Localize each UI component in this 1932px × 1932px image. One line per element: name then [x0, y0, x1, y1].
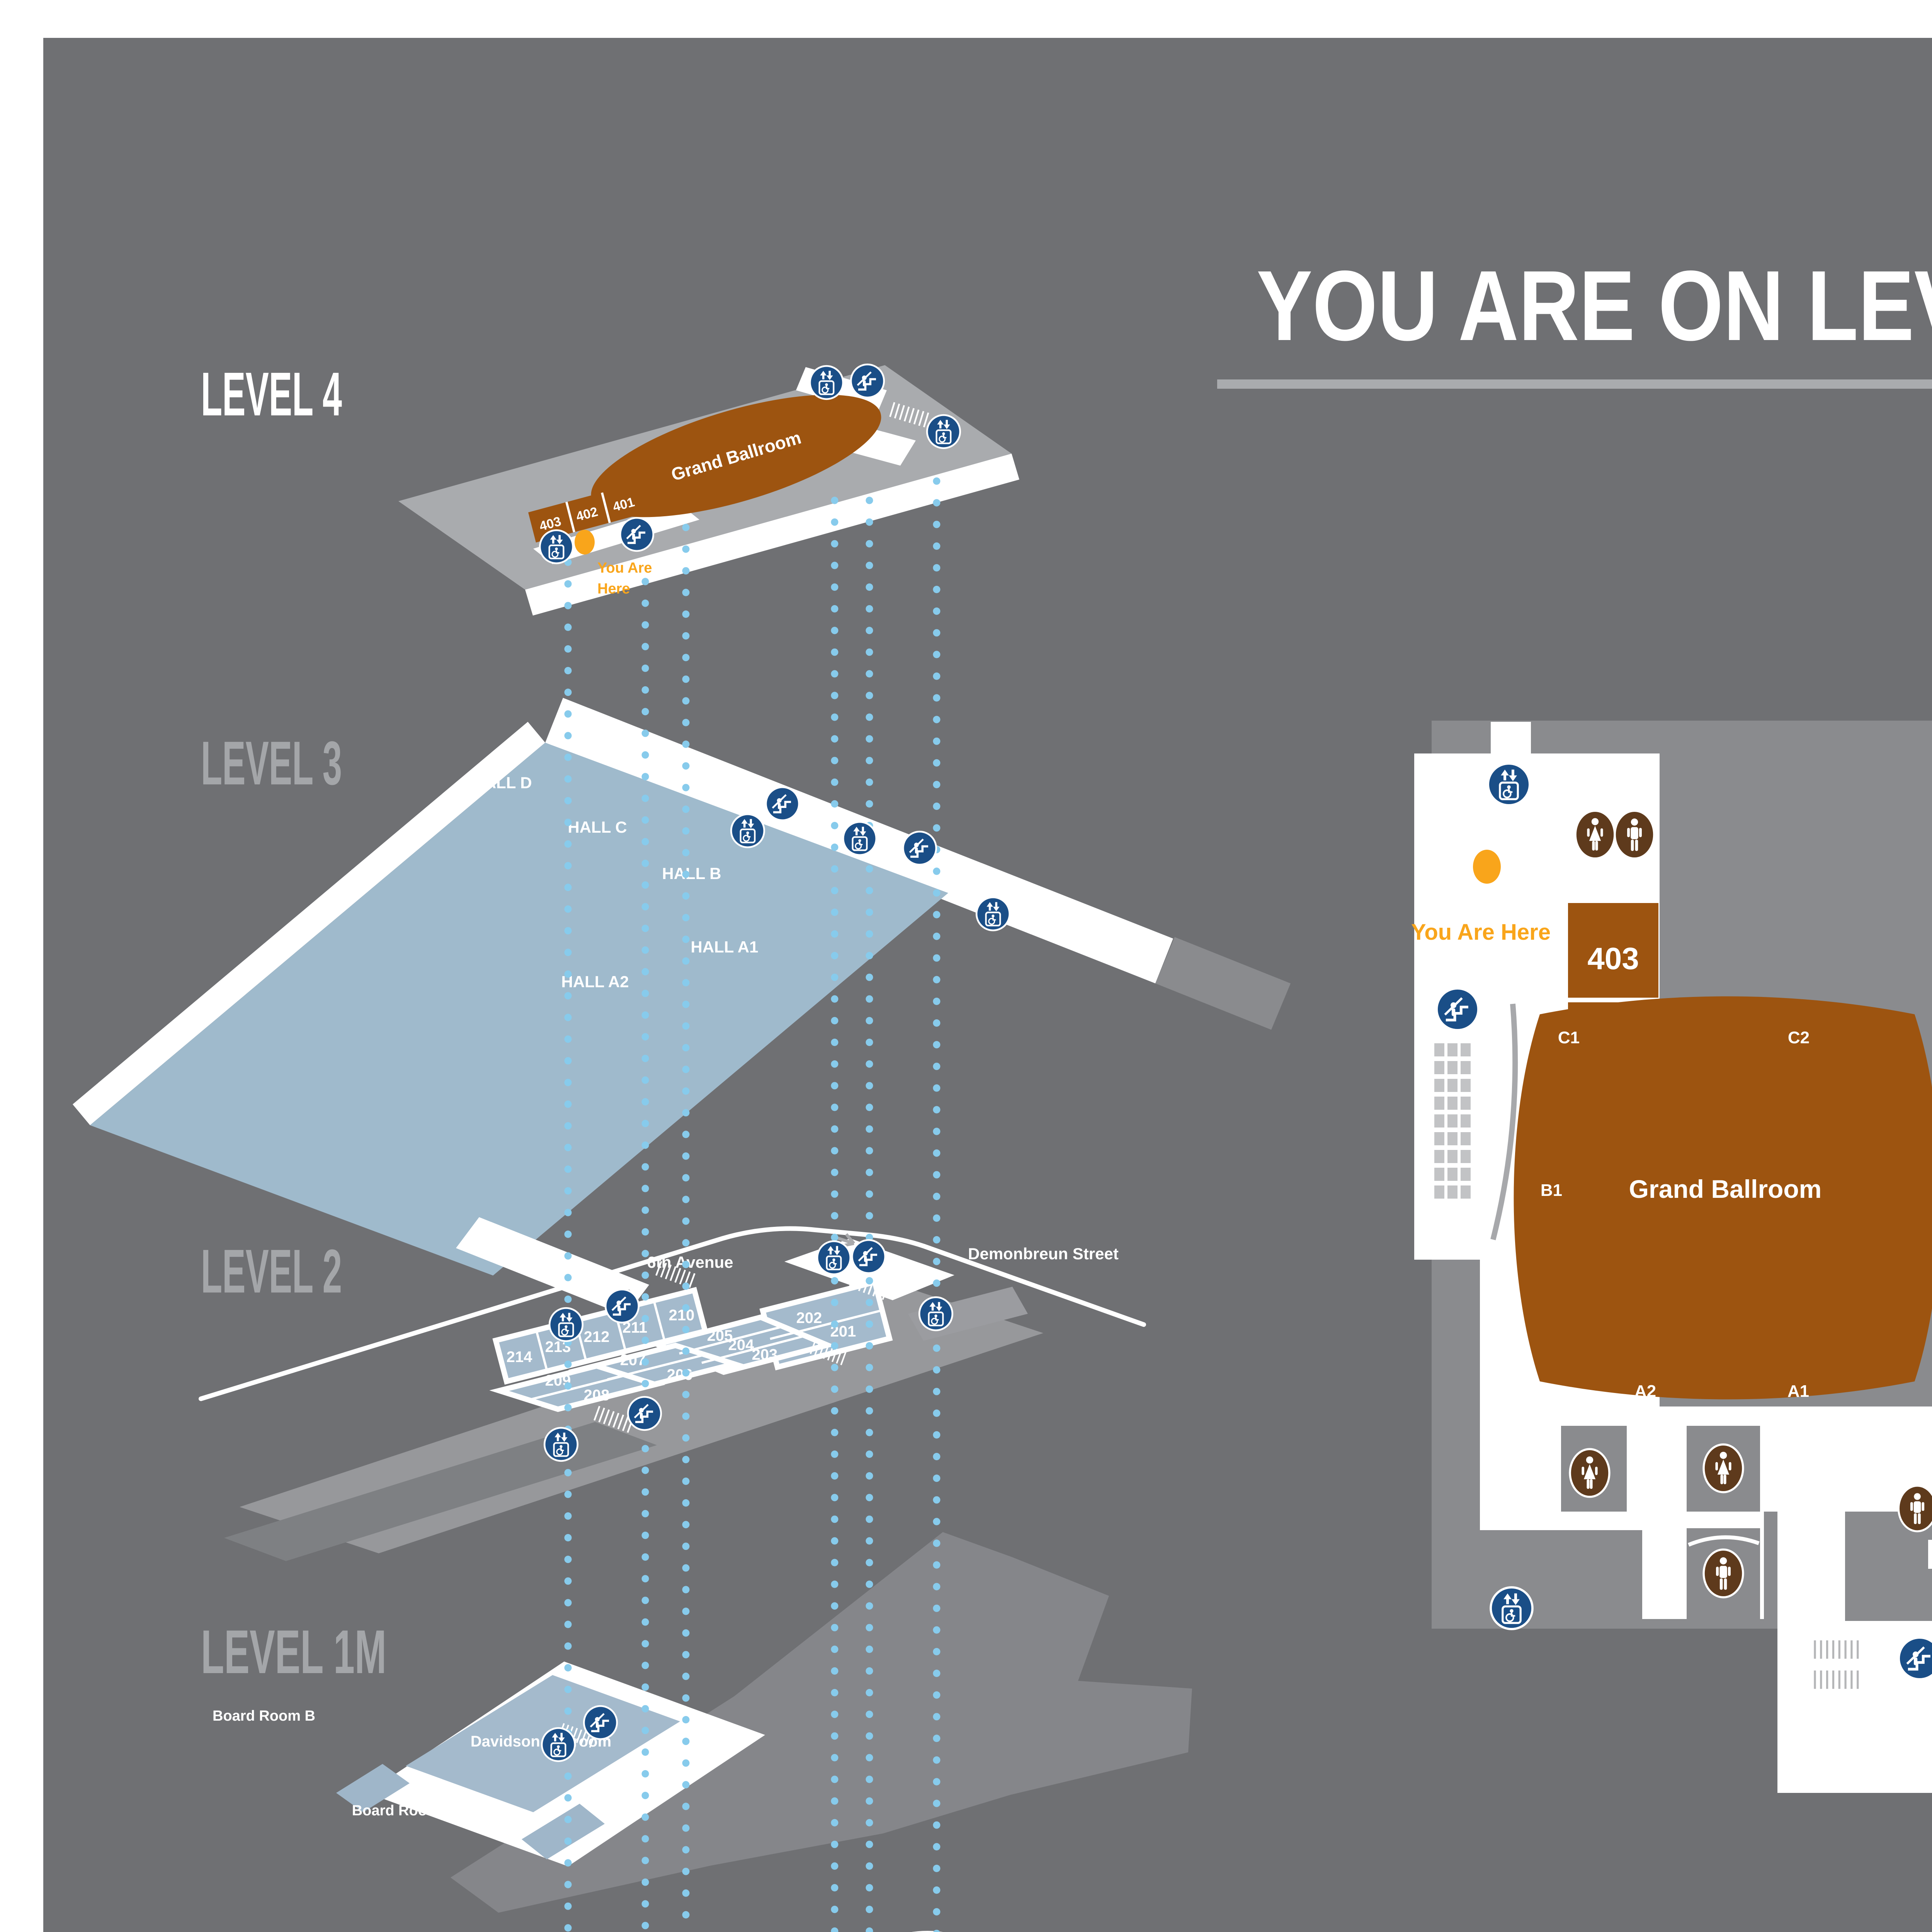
detail-elevator-stub	[1491, 722, 1531, 755]
level-1m-label: LEVEL 1M	[201, 1617, 386, 1686]
mens-restroom-icon	[1615, 811, 1654, 859]
detail-corner-a1: A1	[1787, 1382, 1809, 1401]
you-are-here-label: You Are Here	[1411, 920, 1551, 945]
title-underline	[1217, 379, 1932, 389]
elevator-icon	[976, 897, 1010, 930]
escalator-icon	[1437, 988, 1478, 1030]
detail-corner-b1: B1	[1541, 1181, 1562, 1200]
womens-restroom-icon	[1704, 1444, 1743, 1492]
room-203: 203	[752, 1346, 778, 1363]
escalator-icon	[620, 518, 653, 551]
page-title: YOU ARE ON LEVEL 4	[1257, 250, 1932, 361]
escalator-icon	[851, 364, 884, 398]
room-207: 207	[620, 1352, 646, 1369]
escalator-icon	[584, 1706, 617, 1739]
level-2-label: LEVEL 2	[201, 1236, 342, 1306]
level-4-label: LEVEL 4	[201, 359, 342, 429]
hall-c-label: HALL C	[568, 818, 627, 836]
board-room-a-label: Board Room A	[352, 1803, 454, 1819]
detail-corner-c2: C2	[1788, 1028, 1810, 1047]
sign-page: YOU ARE ON LEVEL 4 LEVEL 4 Grand Ballroo…	[0, 0, 1932, 1932]
elevator-icon	[731, 814, 764, 847]
room-214: 214	[507, 1349, 532, 1366]
elevator-icon	[810, 366, 843, 399]
elevator-icon	[1491, 1587, 1532, 1629]
escalator-icon	[766, 787, 799, 820]
elevator-icon	[927, 415, 960, 448]
womens-restroom-icon	[1575, 811, 1615, 859]
elevator-icon	[919, 1297, 952, 1330]
elevator-icon	[544, 1428, 578, 1461]
detail-corner-c1: C1	[1558, 1028, 1580, 1047]
street-demonbreun-l2: Demonbreun Street	[968, 1245, 1119, 1263]
room-208: 208	[584, 1387, 610, 1404]
elevator-icon	[843, 822, 876, 855]
mens-restroom-icon	[1704, 1549, 1743, 1597]
level-3-label: LEVEL 3	[201, 728, 342, 798]
detail-corridor	[1777, 1512, 1845, 1639]
you-are-here-text-2: Here	[597, 581, 630, 597]
womens-restroom-icon	[1570, 1449, 1609, 1497]
room-212: 212	[584, 1328, 610, 1345]
detail-grand-ballroom-label: Grand Ballroom	[1629, 1175, 1822, 1203]
hall-a1-label: HALL A1	[690, 938, 758, 956]
escalator-icon	[903, 832, 936, 865]
you-are-here-dot	[1473, 850, 1501, 884]
you-are-here-dot	[575, 530, 595, 554]
mens-restroom-icon	[1898, 1486, 1932, 1531]
elevator-icon	[542, 1728, 575, 1761]
detail-stair-grid	[1434, 1043, 1471, 1199]
room-205: 205	[707, 1327, 733, 1344]
detail-right-wing	[1928, 1540, 1932, 1569]
board-room-b-label: Board Room B	[213, 1708, 315, 1724]
escalator-icon	[628, 1397, 661, 1430]
escalator-icon	[852, 1240, 885, 1273]
elevator-icon	[1488, 764, 1530, 805]
elevator-icon	[540, 530, 573, 563]
elevator-icon	[549, 1308, 583, 1341]
hall-d-label: HALL D	[473, 774, 532, 792]
hall-b-label: HALL B	[662, 864, 721, 883]
escalator-icon	[1899, 1638, 1932, 1679]
map-canvas: YOU ARE ON LEVEL 4 LEVEL 4 Grand Ballroo…	[0, 0, 1932, 1932]
street-6th-avenue: 6th Avenue	[647, 1253, 733, 1271]
you-are-here-text-1: You Are	[597, 560, 652, 576]
detail-corner-a2: A2	[1634, 1382, 1656, 1401]
detail-room-403-label: 403	[1587, 941, 1639, 976]
elevator-icon	[817, 1241, 850, 1274]
room-202: 202	[796, 1310, 822, 1327]
escalator-icon	[605, 1289, 639, 1323]
room-210: 210	[669, 1307, 695, 1324]
spacer	[2, 2, 35, 15]
